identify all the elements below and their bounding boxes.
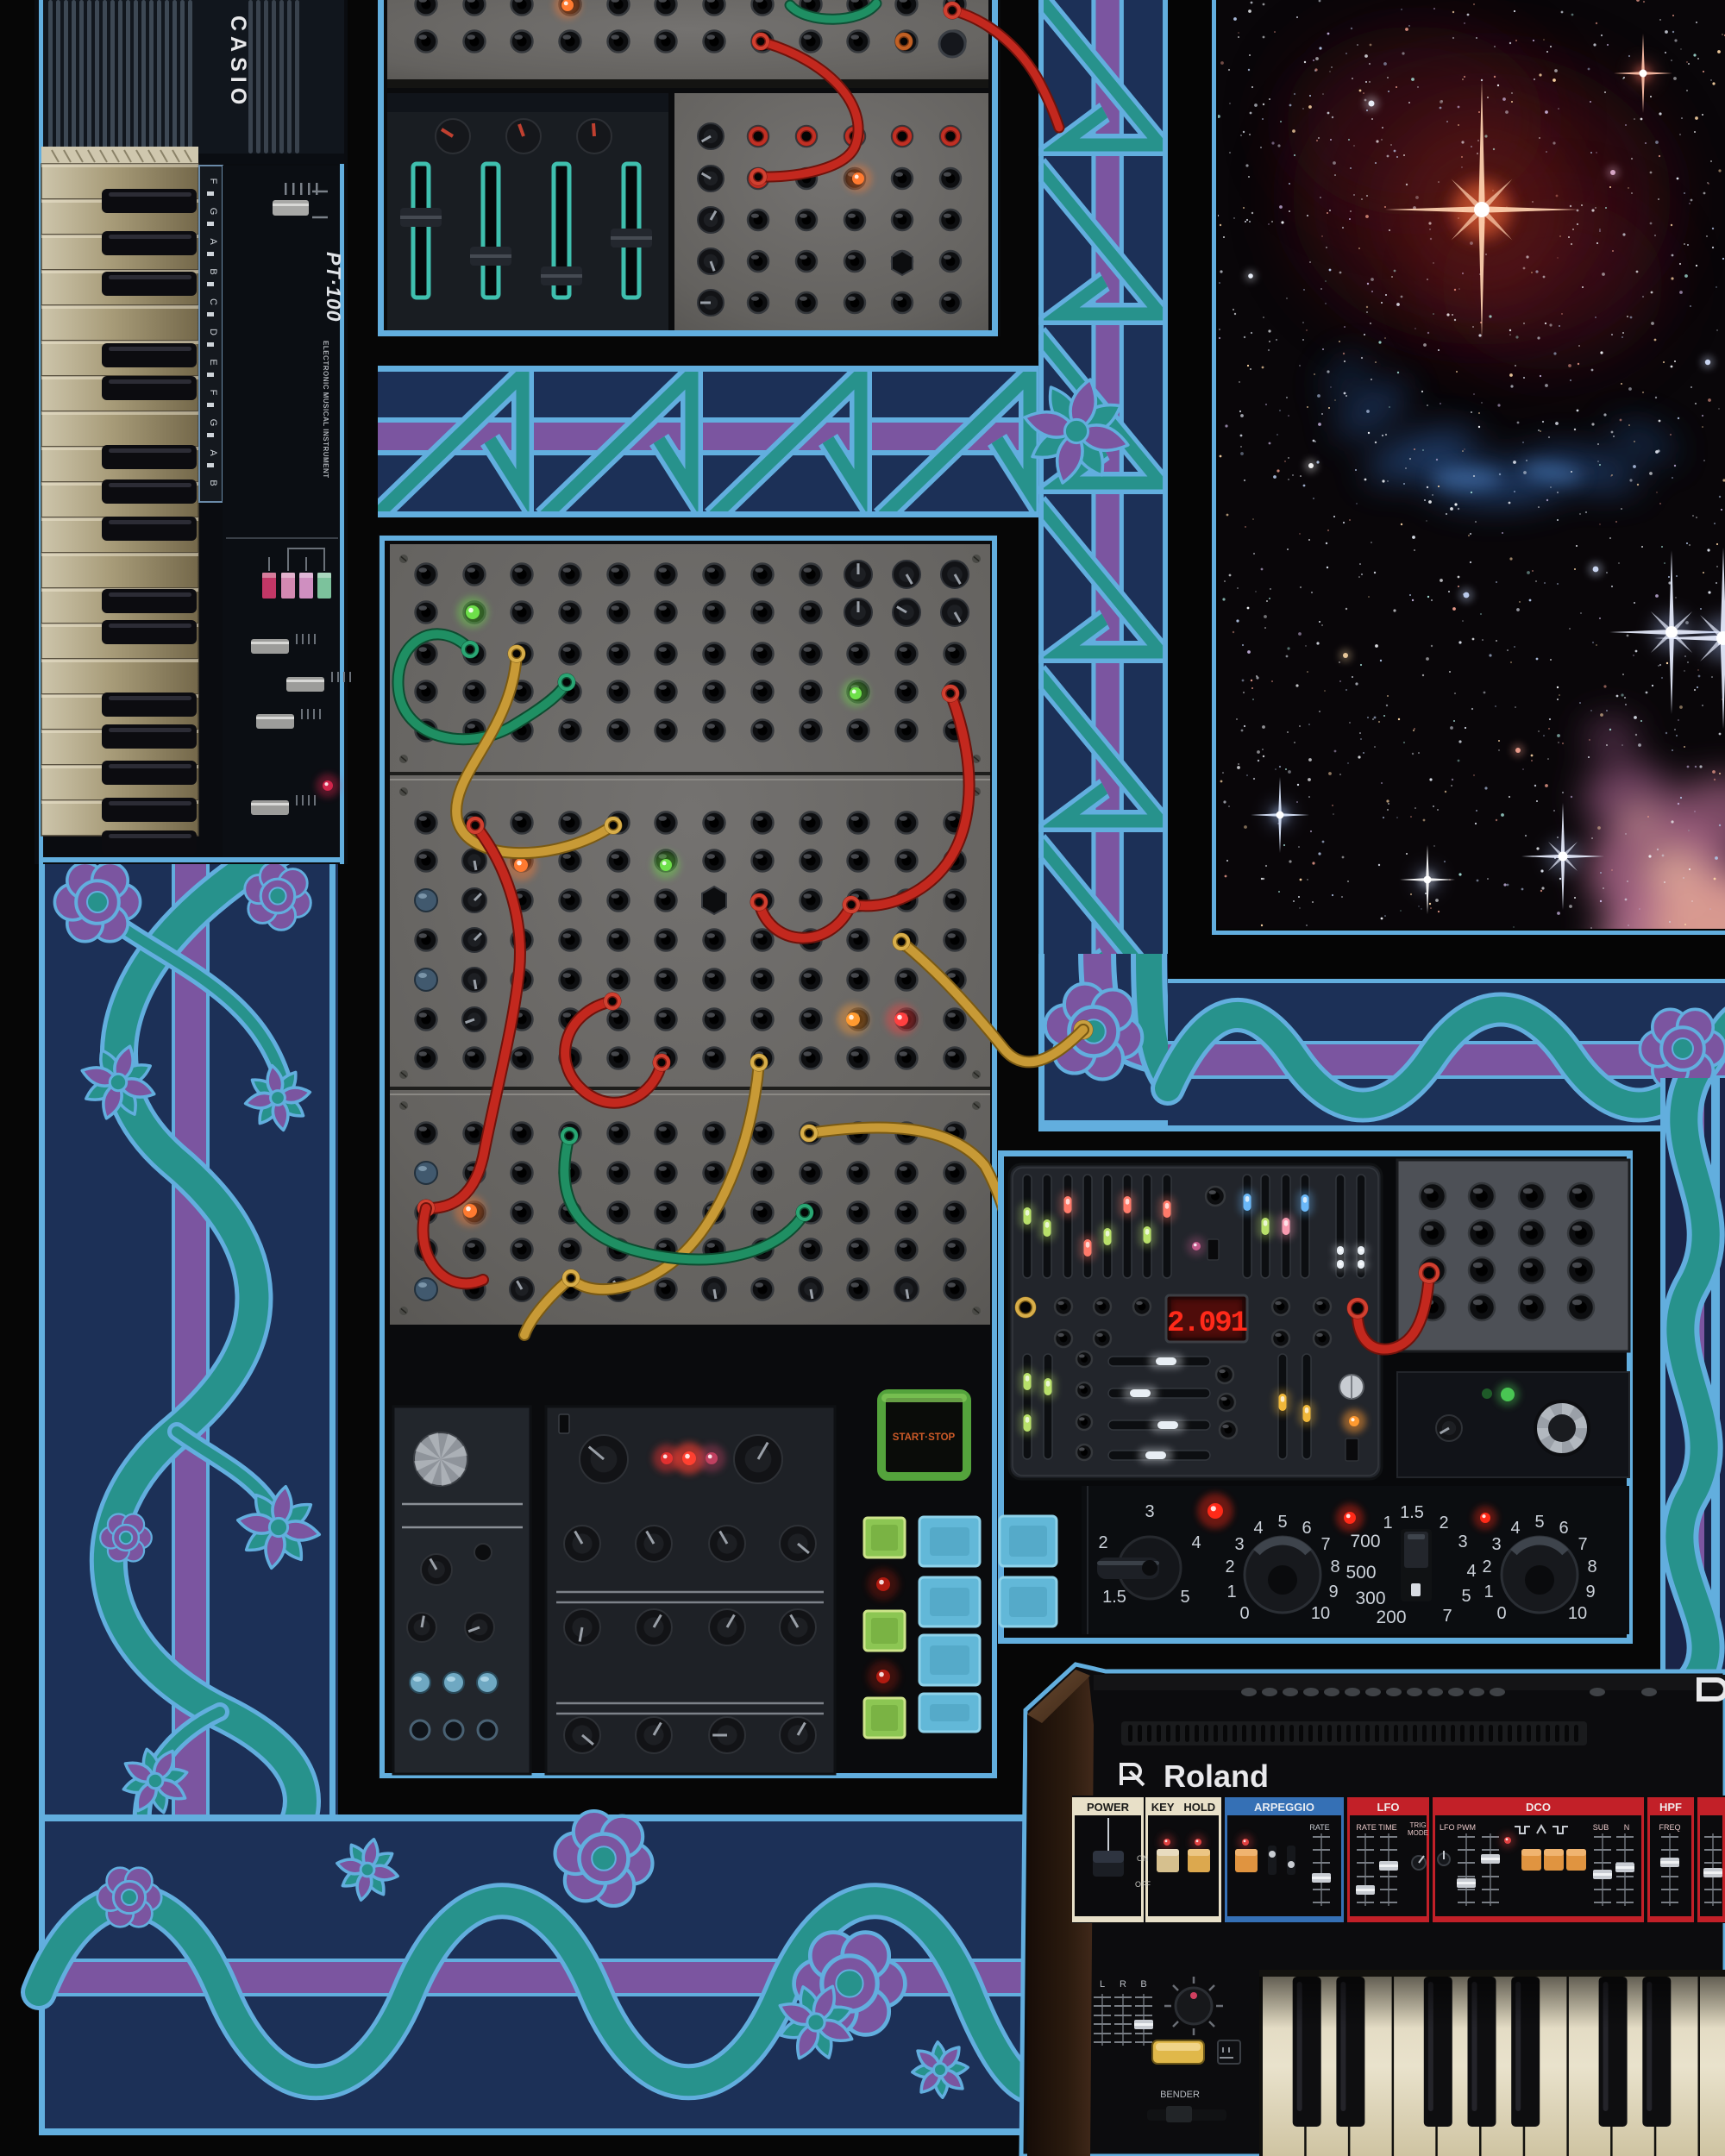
svg-text:1: 1: [1383, 1514, 1392, 1532]
svg-text:3: 3: [1234, 1535, 1244, 1554]
svg-text:KEY HOLD: KEY HOLD: [1151, 1801, 1215, 1814]
svg-text:4: 4: [1466, 1562, 1476, 1581]
svg-text:A: A: [208, 238, 218, 245]
svg-text:SUB: SUB: [1593, 1823, 1609, 1832]
svg-text:B: B: [1140, 1979, 1146, 1990]
svg-text:5: 5: [1180, 1588, 1189, 1607]
svg-text:700: 700: [1350, 1532, 1380, 1551]
svg-text:POWER: POWER: [1087, 1801, 1130, 1814]
svg-text:0: 0: [1239, 1604, 1249, 1623]
svg-text:LFO: LFO: [1377, 1801, 1400, 1814]
svg-text:FREQ: FREQ: [1659, 1823, 1680, 1832]
svg-text:G: G: [208, 419, 218, 427]
svg-text:9: 9: [1585, 1583, 1595, 1601]
svg-text:F: F: [208, 179, 218, 185]
svg-text:10: 10: [1311, 1604, 1330, 1623]
svg-text:1.5: 1.5: [1102, 1588, 1126, 1607]
svg-text:BENDER: BENDER: [1160, 2090, 1200, 2100]
svg-text:6: 6: [1559, 1519, 1568, 1538]
svg-text:2: 2: [1439, 1514, 1448, 1532]
svg-text:F: F: [208, 390, 218, 396]
svg-text:Roland: Roland: [1164, 1758, 1269, 1794]
svg-text:7: 7: [1578, 1535, 1587, 1554]
svg-text:8: 8: [1587, 1557, 1596, 1576]
svg-text:R: R: [1120, 1979, 1126, 1990]
svg-text:OFF: OFF: [1135, 1880, 1151, 1889]
svg-text:0: 0: [1496, 1604, 1506, 1623]
svg-text:HPF: HPF: [1659, 1801, 1682, 1814]
svg-text:B: B: [208, 479, 218, 486]
svg-text:ARPEGGIO: ARPEGGIO: [1254, 1801, 1314, 1814]
svg-text:1: 1: [1226, 1583, 1236, 1601]
svg-text:5: 5: [1461, 1587, 1471, 1606]
svg-text:2: 2: [1098, 1533, 1107, 1552]
svg-text:6: 6: [1302, 1519, 1311, 1538]
svg-text:8: 8: [1330, 1557, 1339, 1576]
svg-text:4: 4: [1510, 1519, 1520, 1538]
svg-text:DCO: DCO: [1526, 1801, 1551, 1814]
svg-text:4: 4: [1191, 1533, 1201, 1552]
svg-text:ELECTRONIC MUSICAL INSTRUMEN: ELECTRONIC MUSICAL INSTRUMENT: [322, 341, 329, 479]
svg-text:500: 500: [1345, 1563, 1376, 1583]
svg-text:L: L: [1100, 1979, 1105, 1990]
svg-text:9: 9: [1328, 1583, 1338, 1601]
svg-text:RATE TIME: RATE TIME: [1356, 1823, 1396, 1832]
svg-text:1.5: 1.5: [1400, 1503, 1424, 1522]
svg-text:START·STOP: START·STOP: [893, 1432, 956, 1443]
svg-text:E: E: [208, 359, 218, 365]
svg-text:5: 5: [1277, 1513, 1287, 1532]
svg-text:C: C: [208, 298, 218, 305]
svg-text:2: 2: [1482, 1557, 1491, 1576]
svg-text:ON: ON: [1137, 1854, 1149, 1863]
svg-text:200: 200: [1376, 1608, 1406, 1627]
svg-text:7: 7: [1442, 1607, 1452, 1626]
svg-text:3: 3: [1491, 1535, 1501, 1554]
svg-text:2: 2: [1225, 1557, 1234, 1576]
svg-text:D: D: [208, 329, 218, 335]
svg-text:G: G: [208, 208, 218, 216]
svg-text:RATE: RATE: [1309, 1823, 1329, 1832]
svg-text:7: 7: [1320, 1535, 1330, 1554]
svg-text:LFO PWM: LFO PWM: [1440, 1823, 1476, 1832]
svg-text:A: A: [208, 449, 218, 456]
svg-text:4: 4: [1253, 1519, 1263, 1538]
svg-text:B: B: [208, 268, 218, 274]
svg-text:3: 3: [1458, 1532, 1467, 1551]
svg-text:TRIG: TRIG: [1409, 1821, 1426, 1829]
svg-text:N: N: [1624, 1823, 1630, 1832]
svg-text:MODE: MODE: [1408, 1829, 1428, 1837]
svg-text:CASIO: CASIO: [226, 16, 250, 110]
svg-text:PT·100: PT·100: [323, 252, 345, 322]
svg-text:3: 3: [1145, 1502, 1154, 1521]
svg-text:5: 5: [1534, 1513, 1544, 1532]
svg-text:10: 10: [1568, 1604, 1587, 1623]
svg-text:300: 300: [1355, 1589, 1385, 1608]
svg-text:1: 1: [1483, 1583, 1493, 1601]
